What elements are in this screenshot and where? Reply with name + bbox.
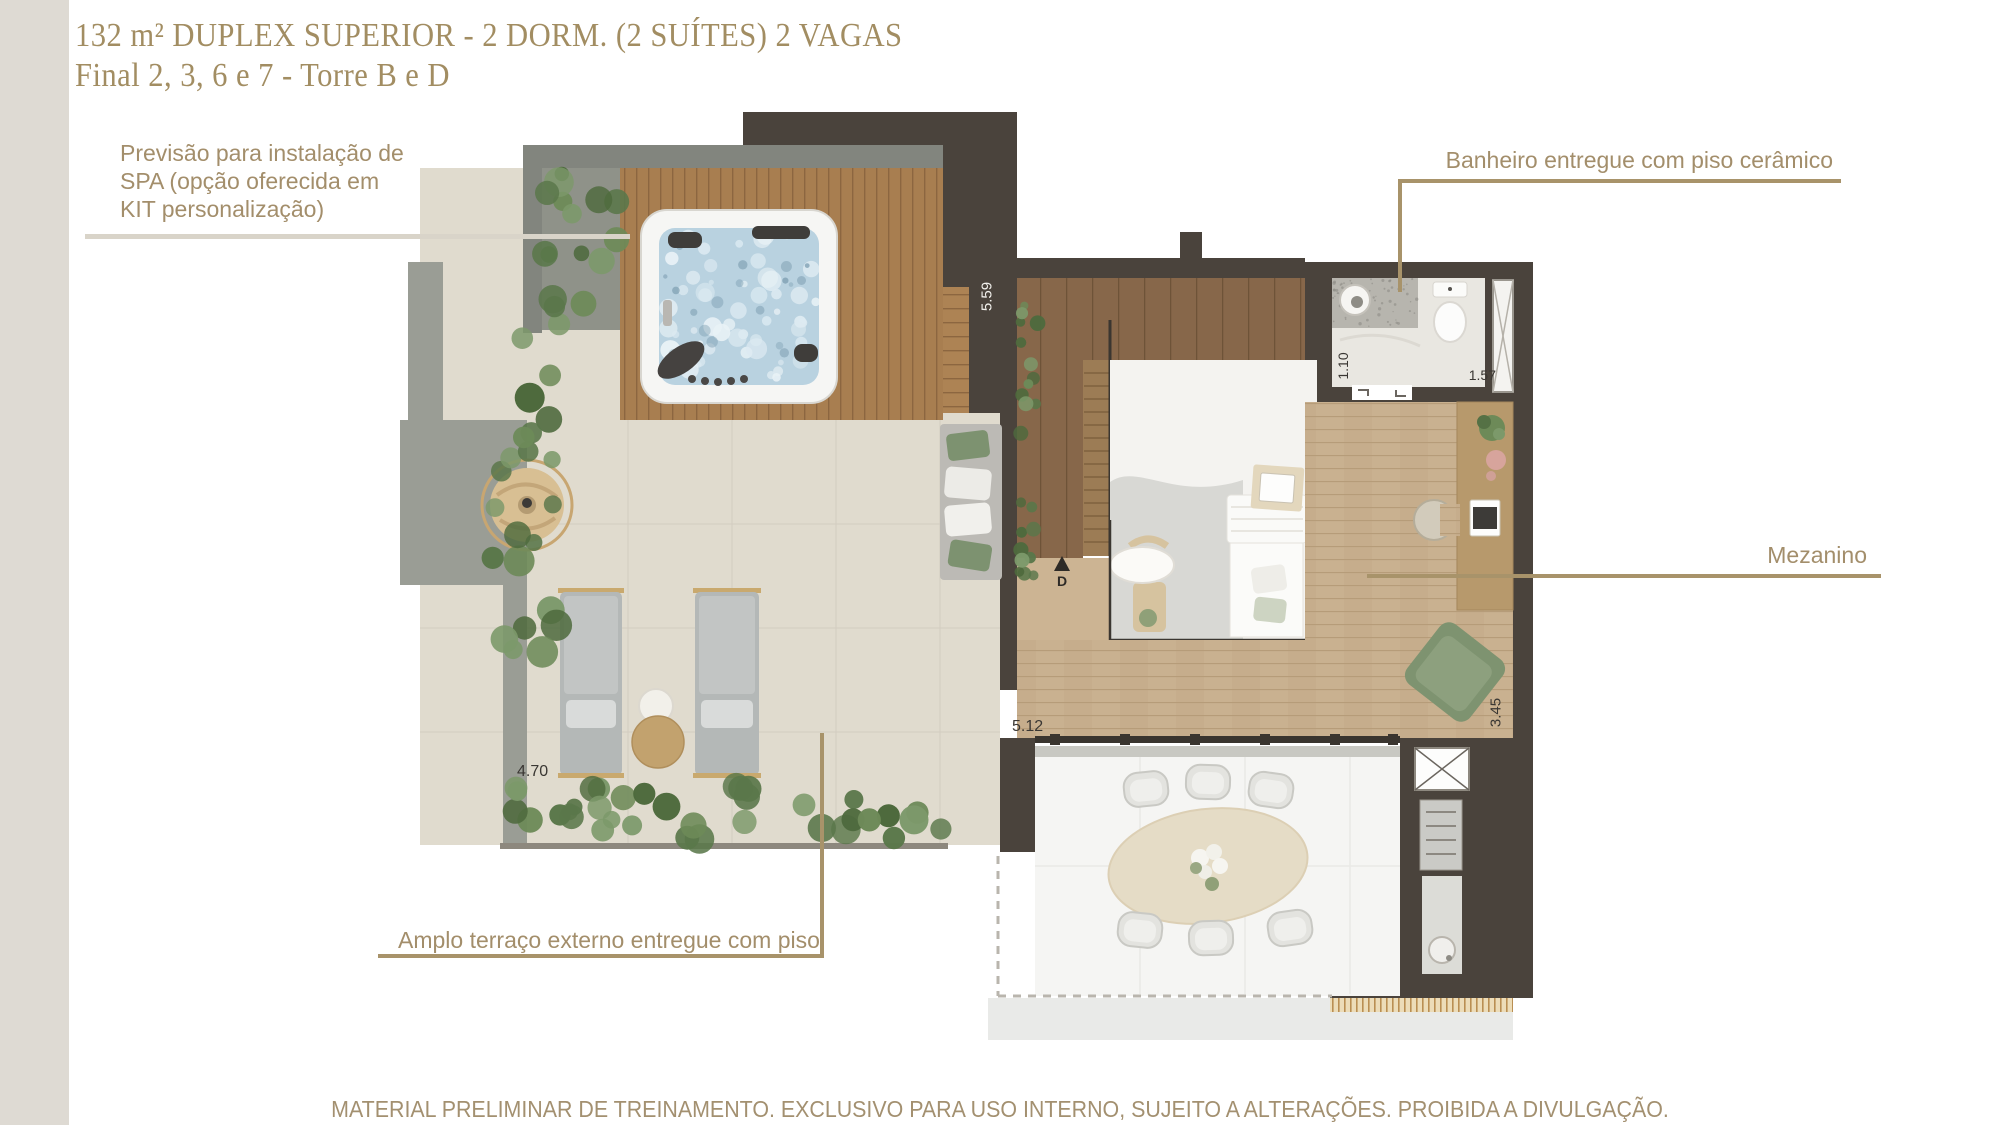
terrace-leader-line-h (378, 954, 824, 958)
spa-leader-line (85, 234, 630, 239)
dim-terrace-4-70: 4.70 (517, 763, 561, 781)
annotation-spa: Previsão para instalação de SPA (opção o… (120, 139, 410, 223)
terrace-leader-line-v (820, 733, 824, 956)
void-over-living (1110, 360, 1317, 640)
dim-deck-5-59: 5.59 (979, 267, 996, 327)
bathroom-leader-line-v (1398, 179, 1402, 292)
annotation-terrace: Amplo terraço externo entregue com piso (398, 926, 838, 954)
title-line2: Final 2, 3, 6 e 7 - Torre B e D (75, 56, 903, 96)
spa-hot-tub (641, 210, 837, 403)
terrace-sofa (940, 424, 1002, 580)
page: 132 m² DUPLEX SUPERIOR - 2 DORM. (2 SUÍT… (0, 0, 2000, 1125)
dim-bath-1-10: 1.10 (1335, 336, 1351, 396)
dining-level-below (1000, 720, 1469, 996)
mezzanine-leader-line (1367, 574, 1881, 578)
bathroom-leader-line-h (1398, 179, 1841, 183)
compass-direction-label: D (1054, 573, 1070, 589)
annotation-mezzanine: Mezanino (1667, 541, 1867, 569)
annotation-bathroom: Banheiro entregue com piso cerâmico (1398, 146, 1833, 174)
page-title: 132 m² DUPLEX SUPERIOR - 2 DORM. (2 SUÍT… (75, 16, 903, 96)
title-line1: 132 m² DUPLEX SUPERIOR - 2 DORM. (2 SUÍT… (75, 16, 903, 56)
footer-disclaimer: MATERIAL PRELIMINAR DE TREINAMENTO. EXCL… (70, 1096, 1930, 1123)
dim-mezz-5-12: 5.12 (1012, 718, 1056, 736)
dim-bath-1-57: 1.57 (1440, 367, 1496, 383)
dim-mezz-3-45: 3.45 (1488, 683, 1505, 743)
